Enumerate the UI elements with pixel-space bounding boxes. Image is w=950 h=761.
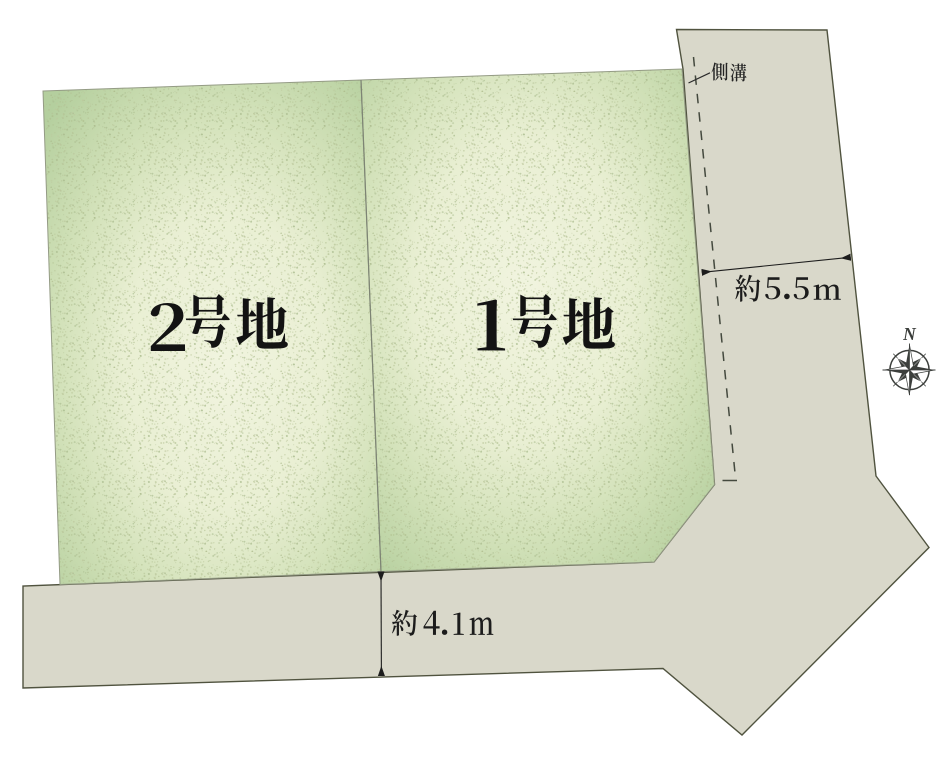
svg-text:N: N	[902, 324, 917, 344]
